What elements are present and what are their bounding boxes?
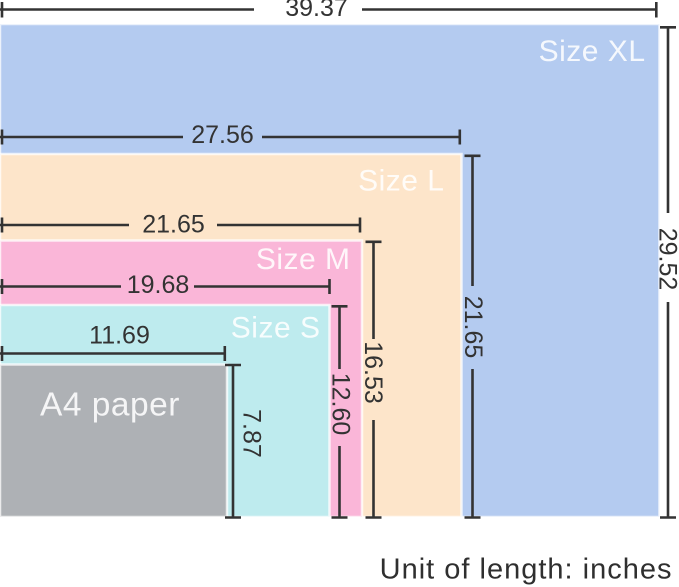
svg-text:Size S: Size S xyxy=(231,312,321,345)
svg-text:21.65: 21.65 xyxy=(142,211,205,239)
svg-text:12.60: 12.60 xyxy=(327,373,355,436)
svg-text:16.53: 16.53 xyxy=(359,341,387,404)
svg-text:Size L: Size L xyxy=(358,165,444,198)
svg-text:29.52: 29.52 xyxy=(654,228,679,291)
svg-text:21.65: 21.65 xyxy=(459,296,487,359)
svg-text:Size XL: Size XL xyxy=(539,35,646,68)
svg-text:A4 paper: A4 paper xyxy=(40,387,180,424)
svg-text:7.87: 7.87 xyxy=(238,409,266,458)
svg-text:27.56: 27.56 xyxy=(191,121,254,149)
svg-text:19.68: 19.68 xyxy=(127,271,190,299)
svg-text:Size M: Size M xyxy=(256,243,351,276)
svg-text:Unit of length: inches: Unit of length: inches xyxy=(380,554,673,586)
svg-text:11.69: 11.69 xyxy=(89,322,150,350)
svg-text:39.37: 39.37 xyxy=(285,0,348,22)
